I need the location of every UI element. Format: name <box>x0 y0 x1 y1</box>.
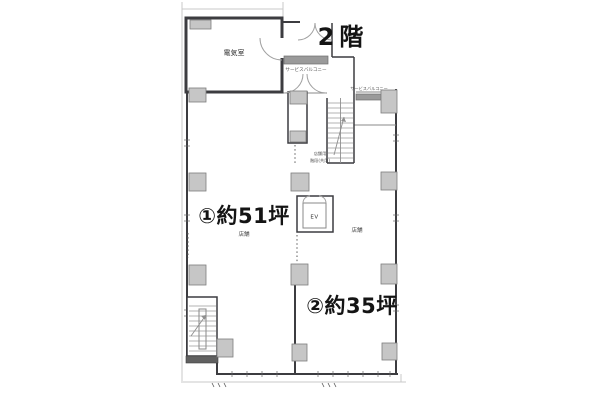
area2-label: ②約35坪 <box>306 294 398 318</box>
elevator: EV <box>297 196 333 232</box>
electric-room-label: 電気室 <box>224 48 245 57</box>
column <box>381 264 397 284</box>
area1-sub-label: 店舗 <box>238 230 250 238</box>
service-balcony-top-label: サービスバルコニー <box>285 66 327 73</box>
column <box>291 264 308 285</box>
electric-room-tab <box>190 20 211 29</box>
mid-door-left-arc <box>284 74 303 93</box>
stair-main-label-2: 階段(共用) <box>310 157 330 164</box>
floor-title: 2階 <box>318 23 369 51</box>
stair-rear <box>186 297 218 363</box>
elevator-label: EV <box>310 215 318 221</box>
column <box>290 91 307 104</box>
service-balcony-top <box>284 56 328 64</box>
dimension-ticks <box>212 383 336 387</box>
stair-main: 店舗用 階段(共用) <box>310 98 354 164</box>
stair-main-label-1: 店舗用 <box>314 150 327 157</box>
column <box>189 265 206 285</box>
stair-rear-hatch <box>186 356 218 363</box>
electric-room: 電気室 <box>186 18 282 92</box>
column <box>290 131 306 142</box>
column <box>381 90 397 113</box>
column <box>217 339 233 357</box>
column <box>189 173 206 191</box>
column <box>189 88 206 102</box>
mid-door-right-arc <box>307 74 326 93</box>
floor-plan-page: 電気室 サービスバルコニー サービスバルコニー 店舗用 階段(共用) <box>0 0 600 400</box>
floor-plan-drawing: 電気室 サービスバルコニー サービスバルコニー 店舗用 階段(共用) <box>0 0 600 400</box>
column <box>381 172 397 190</box>
column <box>292 344 307 361</box>
service-balcony-right <box>356 94 381 100</box>
area1-label: ①約51坪 <box>198 204 290 228</box>
column <box>382 343 397 360</box>
area2-sub-label: 店舗 <box>351 226 363 234</box>
column <box>291 173 309 191</box>
top-door-left-arc <box>298 23 315 40</box>
